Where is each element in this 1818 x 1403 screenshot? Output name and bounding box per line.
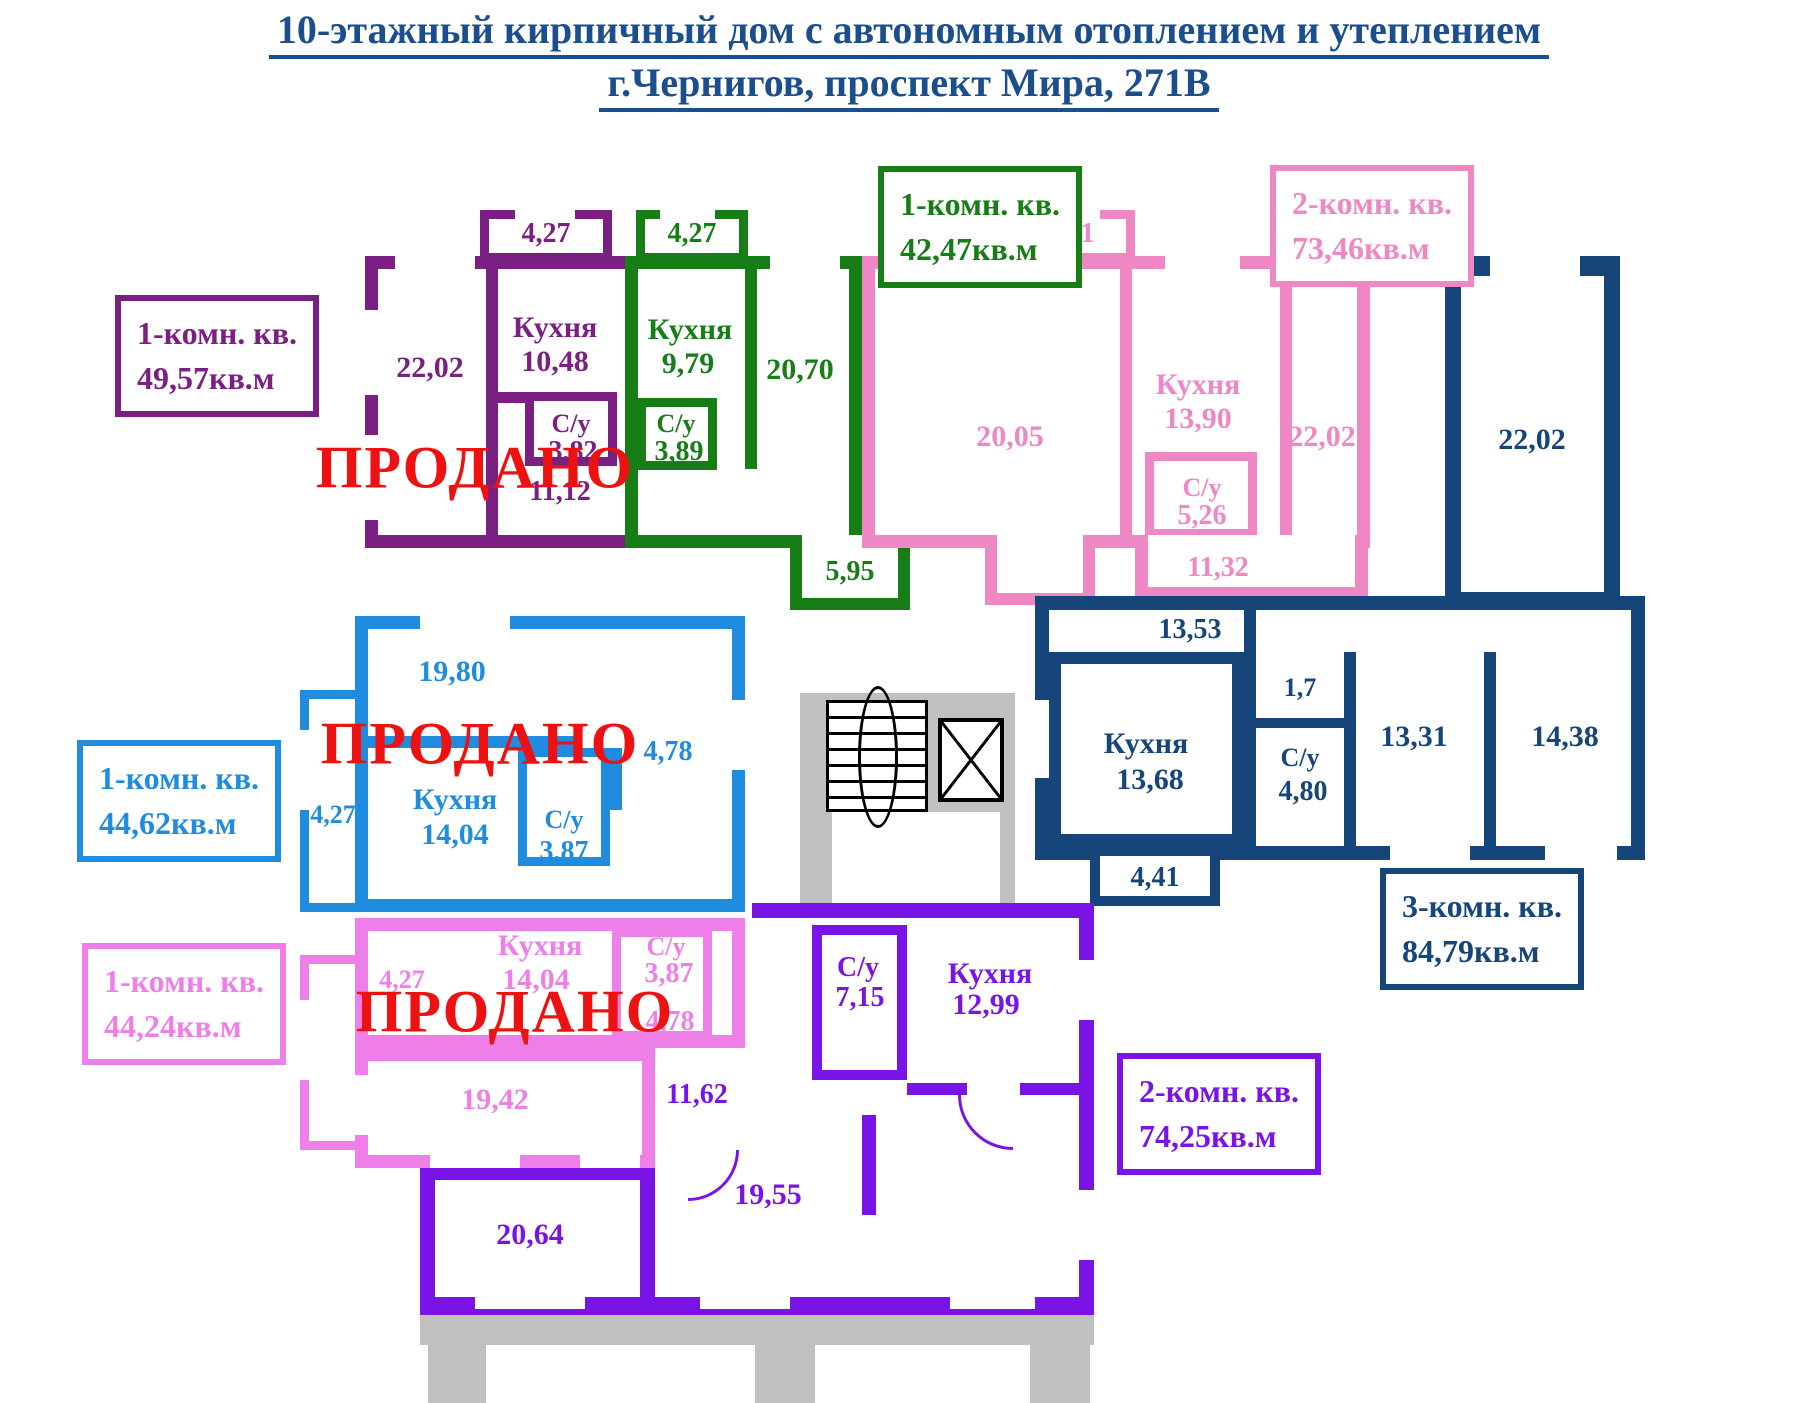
wc-label: С/у	[657, 409, 696, 439]
wc-area-label: 3,89	[655, 436, 704, 468]
apartment-area: 84,79кв.м	[1402, 929, 1562, 974]
wc-label: С/у	[545, 805, 584, 835]
window	[950, 1297, 1035, 1309]
apartment-info-box: 1-комн. кв. 49,57кв.м	[115, 295, 319, 417]
apartment-type: 3-комн. кв.	[1402, 884, 1562, 929]
window	[300, 730, 309, 810]
room-area-label: 20,64	[496, 1218, 564, 1252]
apartment-type: 1-комн. кв.	[900, 182, 1060, 227]
window	[700, 1297, 790, 1309]
kitchen-label: Кухня	[498, 929, 583, 963]
balcony-area-label: 4,27	[310, 800, 356, 830]
kitchen-area-label: 9,79	[662, 347, 715, 381]
window	[580, 1155, 640, 1168]
apartment-area: 44,62кв.м	[99, 801, 259, 846]
apartment-type: 2-комн. кв.	[1139, 1069, 1299, 1114]
window	[365, 310, 378, 395]
apartment-outline	[862, 256, 1370, 548]
building-title-line1-text: 10-этажный кирпичный дом с автономным от…	[269, 7, 1549, 59]
wc-area-label: 5,26	[1178, 500, 1227, 532]
apartment-area: 73,46кв.м	[1292, 226, 1452, 271]
door-arc	[958, 1095, 1013, 1150]
window	[430, 1155, 520, 1168]
apartment-info-box: 1-комн. кв. 44,24кв.м	[82, 943, 286, 1065]
wc-label: С/у	[1281, 743, 1320, 773]
wall-segment	[745, 269, 757, 469]
closet-area-label: 1,7	[1284, 673, 1317, 703]
wall-segment	[1280, 269, 1292, 535]
window	[1545, 846, 1617, 860]
foundation-leg	[1030, 1345, 1090, 1403]
wall-segment	[1020, 1083, 1094, 1095]
hall-outline	[985, 535, 1095, 605]
staircase-rail-icon	[858, 686, 898, 828]
kitchen-label: Кухня	[413, 783, 498, 817]
building-title: 10-этажный кирпичный дом с автономным от…	[0, 0, 1818, 106]
window	[1079, 960, 1094, 1020]
wc-label: С/у	[1183, 473, 1222, 503]
window	[300, 1000, 309, 1080]
wall-segment	[862, 1115, 876, 1215]
hall-area-label: 4,78	[644, 736, 693, 768]
window	[475, 1297, 585, 1309]
apartment-info-box: 3-комн. кв. 84,79кв.м	[1380, 868, 1584, 990]
window	[420, 616, 510, 629]
door-arc	[688, 1150, 739, 1201]
window	[1390, 846, 1470, 860]
kitchen-area-label: 13,68	[1116, 763, 1184, 797]
building-title-line1: 10-этажный кирпичный дом с автономным от…	[0, 6, 1818, 53]
apartment-type: 1-комн. кв.	[99, 756, 259, 801]
apartment-area: 49,57кв.м	[137, 356, 297, 401]
sold-stamp: ПРОДАНО	[356, 978, 675, 1047]
room-area-label: 19,42	[461, 1083, 529, 1117]
room-area-label: 22,02	[396, 351, 464, 385]
wall-segment	[1244, 610, 1256, 846]
wc-area-label: 3,87	[540, 836, 589, 868]
hall-outline	[1135, 535, 1368, 600]
wall-segment	[420, 1168, 655, 1180]
wall-segment	[907, 1083, 967, 1095]
window	[1035, 700, 1049, 778]
balcony-area-label: 4,27	[668, 218, 717, 250]
apartment-info-box: 2-комн. кв. 74,25кв.м	[1117, 1053, 1321, 1175]
apartment-info-box: 2-комн. кв. 73,46кв.м	[1270, 165, 1474, 287]
wc-area-label: 4,80	[1279, 776, 1328, 808]
kitchen-area-label: 13,90	[1164, 402, 1232, 436]
kitchen-label: Кухня	[648, 313, 733, 347]
kitchen-area-label: 12,99	[952, 988, 1020, 1022]
window	[1165, 256, 1240, 269]
hall-area-label: 11,32	[1187, 552, 1248, 584]
sold-stamp: ПРОДАНО	[321, 710, 640, 779]
kitchen-label: Кухня	[1156, 368, 1241, 402]
window	[1490, 256, 1580, 276]
building-title-line2: г.Чернигов, проспект Мира, 271В	[0, 59, 1818, 106]
apartment-area: 74,25кв.м	[1139, 1114, 1299, 1159]
foundation-leg	[755, 1345, 815, 1403]
room-area-label: 20,70	[766, 353, 834, 387]
wc-label: С/у	[837, 952, 879, 984]
window	[1079, 1190, 1094, 1260]
hall-area-label: 11,62	[666, 1079, 727, 1111]
kitchen-label: Кухня	[948, 957, 1033, 991]
wall-segment	[640, 1180, 655, 1297]
room-area-label: 19,80	[418, 655, 486, 689]
wall-segment	[1256, 718, 1344, 728]
apartment-type: 2-комн. кв.	[1292, 181, 1452, 226]
wall-segment	[752, 903, 1094, 918]
room-area-label: 13,31	[1380, 720, 1448, 754]
balcony-area-label: 4,27	[522, 218, 571, 250]
sold-stamp: ПРОДАНО	[316, 434, 635, 503]
window	[770, 256, 840, 269]
stair-landing	[832, 812, 1000, 905]
apartment-area: 42,47кв.м	[900, 227, 1060, 272]
hall-area-label: 13,53	[1159, 614, 1222, 646]
hall-area-label: 5,95	[826, 556, 875, 588]
window	[355, 1075, 368, 1135]
foundation-leg	[428, 1345, 486, 1403]
kitchen-label: Кухня	[513, 311, 598, 345]
floor-plan: 10-этажный кирпичный дом с автономным от…	[0, 0, 1818, 1403]
kitchen-label: Кухня	[1104, 727, 1189, 761]
window	[732, 700, 745, 770]
wall-segment	[420, 1168, 435, 1315]
wc-area-label: 7,15	[836, 982, 885, 1014]
window	[395, 256, 475, 269]
room-area-label: 22,02	[1288, 420, 1356, 454]
apartment-info-box: 1-комн. кв. 42,47кв.м	[878, 166, 1082, 288]
room-area-label: 22,02	[1498, 423, 1566, 457]
kitchen-area-label: 10,48	[521, 345, 589, 379]
room-area-label: 20,05	[976, 420, 1044, 454]
kitchen-area-label: 14,04	[421, 818, 489, 852]
apartment-type: 1-комн. кв.	[137, 311, 297, 356]
elevator-icon	[938, 718, 1004, 802]
wall-segment	[1344, 652, 1356, 846]
room-area-label: 14,38	[1531, 720, 1599, 754]
room-area-label: 19,55	[734, 1178, 802, 1212]
building-title-line2-text: г.Чернигов, проспект Мира, 271В	[599, 60, 1218, 112]
apartment-info-box: 1-комн. кв. 44,62кв.м	[77, 740, 281, 862]
wall-segment	[1120, 269, 1132, 548]
balcony-area-label: 4,41	[1131, 862, 1180, 894]
foundation-band	[420, 1315, 1094, 1345]
wall-segment	[1484, 652, 1496, 846]
apartment-type: 1-комн. кв.	[104, 959, 264, 1004]
apartment-area: 44,24кв.м	[104, 1004, 264, 1049]
